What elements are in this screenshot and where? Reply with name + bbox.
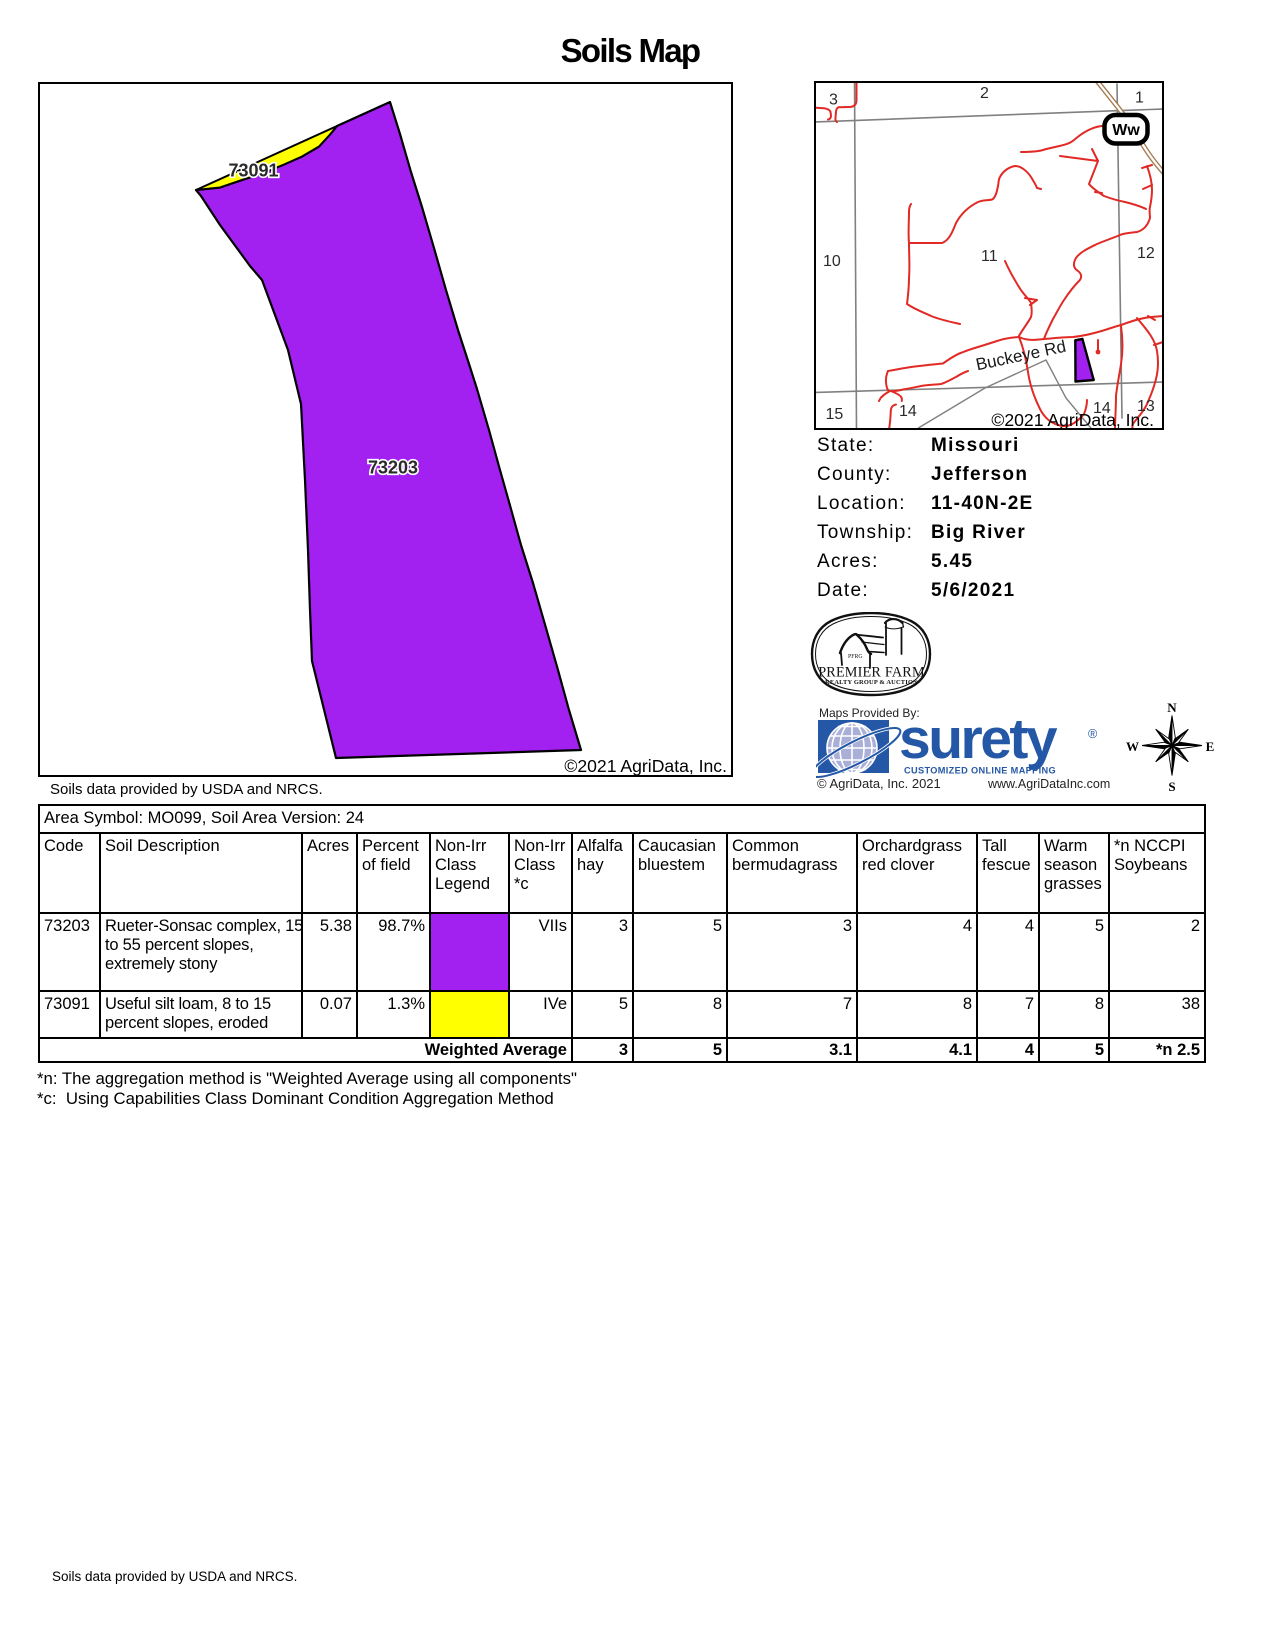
svg-text:S: S [1168, 779, 1175, 794]
svg-text:2: 2 [980, 85, 989, 102]
svg-text:©2021 AgriData, Inc.: ©2021 AgriData, Inc. [564, 756, 727, 775]
svg-text:W: W [1126, 739, 1139, 754]
svg-text:PFRG: PFRG [848, 654, 863, 660]
svg-text:®: ® [1088, 727, 1098, 741]
svg-text:REALTY GROUP & AUCTION: REALTY GROUP & AUCTION [825, 679, 918, 686]
svg-text:surety: surety [899, 719, 1058, 771]
svg-text:N: N [1167, 700, 1177, 715]
svg-text:15: 15 [826, 406, 844, 423]
svg-text:CUSTOMIZED ONLINE MAPPING: CUSTOMIZED ONLINE MAPPING [904, 766, 1056, 776]
svg-text:14: 14 [899, 403, 917, 420]
svg-text:Ww: Ww [1112, 122, 1140, 139]
svg-text:1: 1 [1135, 90, 1144, 107]
svg-text:10: 10 [823, 253, 841, 270]
svg-text:12: 12 [1137, 245, 1155, 262]
svg-text:E: E [1206, 739, 1215, 754]
svg-text:11: 11 [981, 248, 998, 265]
svg-text:3: 3 [829, 92, 838, 109]
svg-text:73203: 73203 [368, 458, 418, 478]
svg-text:©2021 AgriData, Inc.: ©2021 AgriData, Inc. [991, 410, 1154, 428]
svg-text:73091: 73091 [228, 161, 278, 181]
